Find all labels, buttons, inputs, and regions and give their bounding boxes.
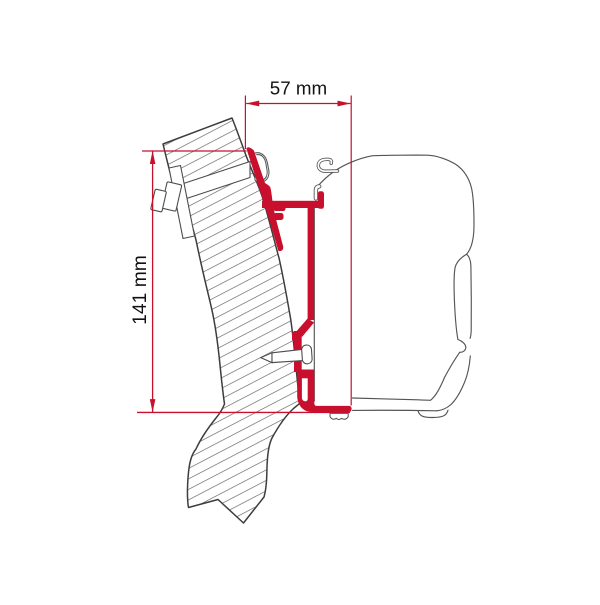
svg-text:141 mm: 141 mm	[130, 255, 151, 325]
svg-text:57 mm: 57 mm	[270, 77, 327, 98]
